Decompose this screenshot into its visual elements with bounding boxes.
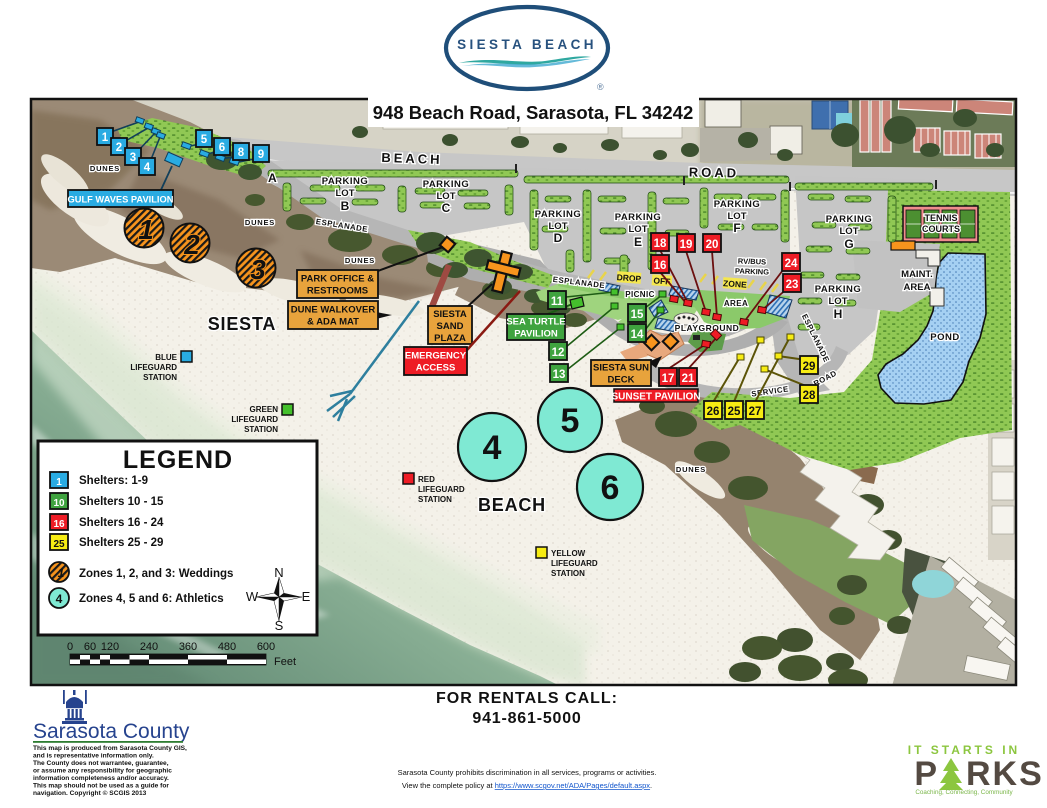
svg-text:27: 27: [749, 406, 762, 418]
svg-text:GREEN: GREEN: [250, 405, 279, 414]
svg-text:STATION: STATION: [143, 373, 177, 382]
svg-text:LOT: LOT: [336, 188, 355, 199]
svg-text:B: B: [341, 199, 350, 213]
svg-text:3: 3: [250, 254, 266, 285]
svg-text:24: 24: [785, 258, 798, 270]
svg-text:13: 13: [553, 369, 566, 381]
svg-text:480: 480: [218, 641, 236, 653]
svg-text:PARKING: PARKING: [735, 266, 769, 276]
svg-text:4: 4: [483, 429, 502, 467]
svg-text:17: 17: [662, 373, 675, 385]
svg-text:RED: RED: [418, 475, 435, 484]
svg-text:60: 60: [84, 641, 96, 653]
svg-text:PARKING: PARKING: [826, 214, 873, 225]
svg-text:DUNES: DUNES: [345, 256, 375, 265]
svg-text:C: C: [442, 201, 451, 215]
svg-text:F: F: [733, 221, 740, 235]
svg-text:BEACH: BEACH: [381, 150, 443, 167]
svg-text:25: 25: [728, 406, 741, 418]
svg-text:P: P: [914, 755, 938, 793]
svg-text:TENNIS: TENNIS: [924, 213, 957, 223]
svg-text:or assume any responsibility f: or assume any responsibility for geograp…: [33, 768, 172, 775]
svg-text:1: 1: [58, 566, 65, 580]
svg-text:DUNES: DUNES: [245, 218, 275, 227]
svg-text:DUNE WALKOVER: DUNE WALKOVER: [291, 305, 376, 316]
svg-text:5: 5: [561, 402, 580, 440]
svg-text:View the complete policy at ht: View the complete policy at https://www.…: [402, 781, 652, 790]
svg-text:EMERGENCY: EMERGENCY: [405, 351, 467, 362]
svg-text:SUNSET PAVILION: SUNSET PAVILION: [611, 392, 700, 403]
svg-text:PICNIC: PICNIC: [625, 290, 655, 299]
svg-text:This map should not be used as: This map should not be used as a guide f…: [33, 783, 169, 790]
svg-text:1: 1: [56, 477, 62, 488]
svg-text:360: 360: [179, 641, 197, 653]
svg-text:9: 9: [258, 149, 264, 161]
svg-text:LIFEGUARD: LIFEGUARD: [418, 485, 465, 494]
svg-text:YELLOW: YELLOW: [551, 549, 586, 558]
svg-text:SAND: SAND: [437, 321, 464, 332]
svg-text:G: G: [844, 237, 853, 251]
svg-text:Coaching, Connecting, Communit: Coaching, Connecting, Community: [915, 789, 1013, 796]
svg-text:2: 2: [183, 229, 200, 260]
svg-text:Shelters: 1-9: Shelters: 1-9: [79, 475, 148, 487]
svg-text:LIFEGUARD: LIFEGUARD: [551, 559, 598, 568]
svg-text:Sarasota County: Sarasota County: [33, 720, 190, 743]
svg-text:120: 120: [101, 641, 119, 653]
svg-text:Shelters 10 - 15: Shelters 10 - 15: [79, 496, 164, 508]
svg-text:14: 14: [631, 329, 644, 341]
svg-text:12: 12: [552, 347, 565, 359]
svg-text:DROP: DROP: [616, 272, 642, 284]
svg-text:1: 1: [102, 132, 109, 144]
svg-text:navigation. Copyright ©: navigation. Copyright © SCGIS 2013: [33, 789, 147, 797]
svg-text:PLAYGROUND: PLAYGROUND: [675, 323, 740, 333]
svg-text:This map is produced from Sara: This map is produced from Sarasota Count…: [33, 745, 187, 752]
svg-text:LOT: LOT: [829, 296, 848, 307]
svg-text:RESTROOMS: RESTROOMS: [307, 286, 368, 297]
svg-text:23: 23: [786, 279, 799, 291]
svg-text:29: 29: [803, 361, 816, 373]
svg-text:PARKING: PARKING: [423, 179, 470, 190]
svg-text:21: 21: [682, 373, 695, 385]
svg-text:A: A: [268, 171, 277, 185]
svg-text:SIESTA BEACH: SIESTA BEACH: [457, 37, 597, 52]
svg-text:PLAZA: PLAZA: [434, 333, 466, 344]
svg-text:BLUE: BLUE: [155, 353, 177, 362]
svg-text:948 Beach Road, Sarasota, FL 3: 948 Beach Road, Sarasota, FL 34242: [373, 102, 694, 123]
svg-text:Zones 1, 2, and 3: Weddings: Zones 1, 2, and 3: Weddings: [79, 568, 233, 580]
svg-text:RKS: RKS: [966, 755, 1044, 793]
svg-text:Feet: Feet: [274, 656, 296, 668]
svg-text:SEA TURTLE: SEA TURTLE: [506, 317, 565, 328]
svg-text:ZONE: ZONE: [723, 278, 748, 290]
svg-text:information completeness and/o: information completeness and/or accuracy…: [33, 775, 169, 782]
svg-text:16: 16: [53, 519, 65, 530]
svg-text:5: 5: [201, 134, 208, 146]
svg-text:COURTS: COURTS: [922, 224, 960, 234]
svg-text:6: 6: [219, 142, 225, 154]
svg-text:20: 20: [706, 239, 719, 251]
svg-text:941-861-5000: 941-861-5000: [472, 710, 581, 727]
svg-text:RV/BUS: RV/BUS: [738, 257, 767, 267]
svg-text:0: 0: [67, 641, 73, 653]
svg-text:W: W: [246, 589, 259, 604]
svg-text:BEACH: BEACH: [478, 495, 546, 515]
svg-text:POND: POND: [930, 332, 959, 343]
svg-text:MAINT.: MAINT.: [901, 269, 933, 280]
svg-text:STATION: STATION: [418, 495, 452, 504]
svg-text:19: 19: [680, 239, 693, 251]
svg-text:SIESTA: SIESTA: [208, 314, 276, 334]
svg-text:H: H: [834, 307, 843, 321]
svg-text:SIESTA SUN: SIESTA SUN: [593, 363, 649, 374]
svg-text:SIESTA: SIESTA: [433, 309, 467, 320]
svg-text:2: 2: [116, 142, 122, 154]
svg-text:ACCESS: ACCESS: [416, 363, 456, 374]
svg-text:AREA: AREA: [904, 282, 931, 293]
svg-text:STATION: STATION: [551, 569, 585, 578]
svg-text:E: E: [634, 235, 642, 249]
svg-text:LEGEND: LEGEND: [123, 446, 233, 474]
svg-text:DUNES: DUNES: [676, 465, 706, 474]
svg-text:PARKING: PARKING: [815, 284, 862, 295]
svg-text:LOT: LOT: [629, 224, 648, 235]
svg-text:18: 18: [654, 238, 667, 250]
svg-text:LIFEGUARD: LIFEGUARD: [130, 363, 177, 372]
svg-text:600: 600: [257, 641, 275, 653]
svg-text:DUNES: DUNES: [90, 164, 120, 173]
svg-text:1: 1: [138, 214, 154, 245]
svg-text:PARKING: PARKING: [714, 199, 761, 210]
svg-text:PAVILION: PAVILION: [514, 329, 558, 340]
svg-text:4: 4: [56, 592, 63, 606]
svg-text:8: 8: [238, 147, 245, 159]
svg-text:240: 240: [140, 641, 158, 653]
svg-text:PARKING: PARKING: [615, 212, 662, 223]
svg-text:16: 16: [654, 260, 667, 272]
svg-text:PARKING: PARKING: [535, 209, 582, 220]
svg-text:Shelters 16 - 24: Shelters 16 - 24: [79, 517, 164, 529]
svg-text:FOR RENTALS CALL:: FOR RENTALS CALL:: [436, 690, 618, 707]
svg-text:AREA: AREA: [724, 299, 748, 308]
svg-text:D: D: [554, 231, 563, 245]
svg-text:®: ®: [597, 82, 604, 92]
svg-text:DECK: DECK: [608, 375, 635, 386]
svg-text:GULF WAVES PAVILION: GULF WAVES PAVILION: [68, 195, 174, 205]
svg-text:10: 10: [53, 498, 65, 509]
svg-text:and is representative informat: and is representative information only.: [33, 753, 154, 760]
svg-text:LOT: LOT: [840, 226, 859, 237]
svg-text:26: 26: [707, 406, 720, 418]
svg-text:The County does not warrantee,: The County does not warrantee, guarantee…: [33, 760, 169, 767]
svg-text:15: 15: [631, 309, 644, 321]
svg-text:11: 11: [551, 296, 564, 308]
svg-text:28: 28: [803, 390, 816, 402]
svg-text:E: E: [302, 589, 311, 604]
svg-text:Zones 4, 5 and 6: Athletics: Zones 4, 5 and 6: Athletics: [79, 593, 224, 605]
svg-text:PARKING: PARKING: [322, 176, 369, 187]
svg-text:4: 4: [144, 162, 151, 174]
svg-text:PARK OFFICE &: PARK OFFICE &: [301, 274, 374, 285]
svg-text:3: 3: [130, 152, 136, 164]
svg-text:Sarasota County prohibits disc: Sarasota County prohibits discrimination…: [398, 768, 657, 777]
svg-text:LIFEGUARD: LIFEGUARD: [231, 415, 278, 424]
svg-text:6: 6: [601, 469, 620, 507]
svg-text:ROAD: ROAD: [689, 165, 740, 181]
svg-text:Shelters 25 - 29: Shelters 25 - 29: [79, 537, 163, 549]
svg-text:25: 25: [53, 539, 65, 550]
svg-text:STATION: STATION: [244, 425, 278, 434]
svg-text:& ADA MAT: & ADA MAT: [307, 317, 359, 328]
